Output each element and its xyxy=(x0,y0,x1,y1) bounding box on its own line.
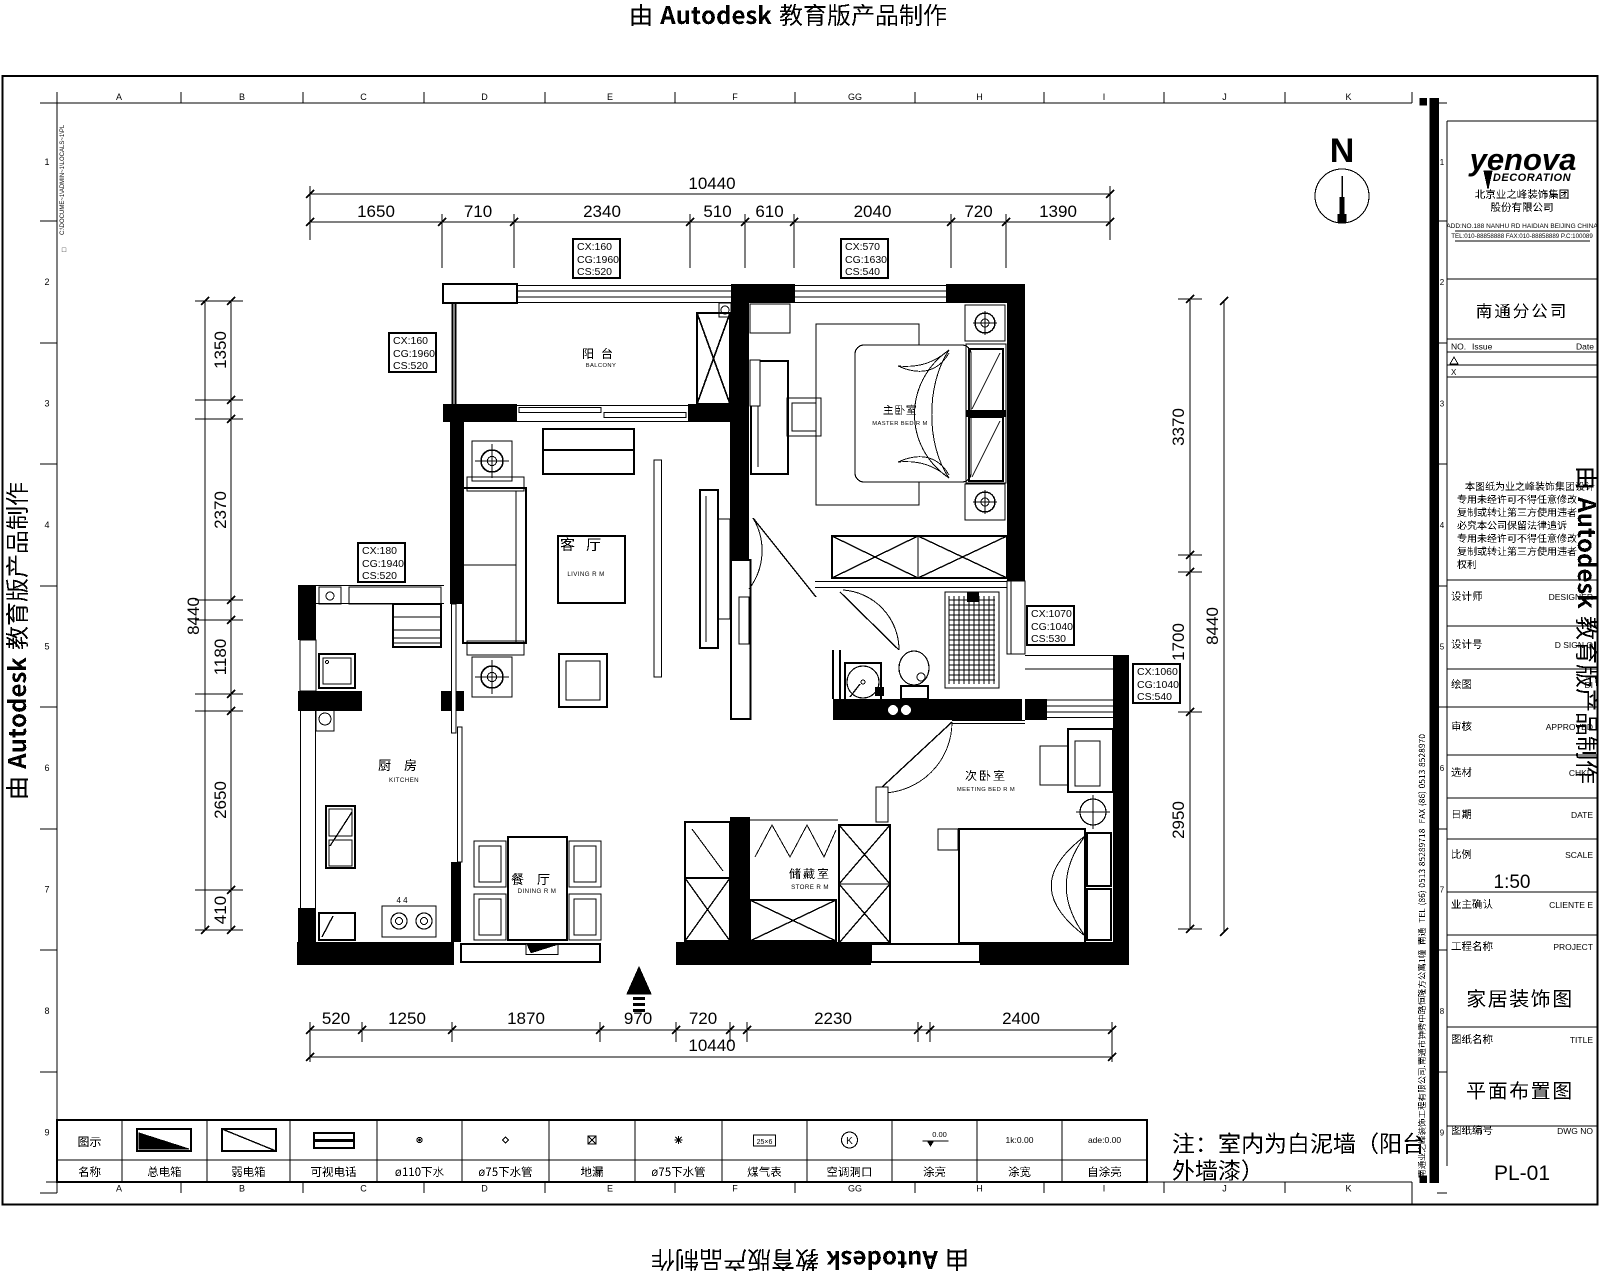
svg-text:2230: 2230 xyxy=(814,1009,852,1028)
svg-text:6: 6 xyxy=(44,763,49,773)
svg-text:H: H xyxy=(976,1184,983,1194)
svg-text:2400: 2400 xyxy=(1002,1009,1040,1028)
svg-text:25×6: 25×6 xyxy=(757,1139,773,1146)
svg-text:2040: 2040 xyxy=(854,202,892,221)
svg-text:E: E xyxy=(607,92,613,102)
svg-text:E: E xyxy=(607,1184,613,1194)
svg-text:8: 8 xyxy=(1440,1007,1445,1016)
svg-text:D: D xyxy=(481,92,488,102)
svg-text:DECORATION: DECORATION xyxy=(1493,172,1572,184)
svg-text:610: 610 xyxy=(755,202,783,221)
svg-text:A: A xyxy=(116,92,122,102)
svg-text:DWG NO: DWG NO xyxy=(1557,1126,1593,1136)
svg-text:710: 710 xyxy=(464,202,492,221)
svg-text:2950: 2950 xyxy=(1169,801,1188,839)
svg-text:2: 2 xyxy=(44,277,49,287)
svg-text:8440: 8440 xyxy=(184,597,203,635)
svg-text:MEETING BED R M: MEETING BED R M xyxy=(957,787,1015,793)
svg-text:CX:160: CX:160 xyxy=(393,335,428,347)
svg-text:1700: 1700 xyxy=(1169,623,1188,661)
svg-text:SCALE: SCALE xyxy=(1565,850,1593,860)
svg-text:8440: 8440 xyxy=(1203,607,1222,645)
svg-text:CX:1070: CX:1070 xyxy=(1031,608,1072,620)
svg-text:0.00: 0.00 xyxy=(932,1130,947,1139)
svg-text:I: I xyxy=(1103,1184,1106,1194)
svg-text:K: K xyxy=(1345,1184,1351,1194)
svg-text:6: 6 xyxy=(1440,764,1445,773)
svg-text:A: A xyxy=(116,1184,122,1194)
svg-text:CS:520: CS:520 xyxy=(362,570,397,582)
svg-text:3370: 3370 xyxy=(1169,408,1188,446)
svg-text:GG: GG xyxy=(848,1184,862,1194)
svg-text:CG:1040: CG:1040 xyxy=(1137,679,1179,691)
svg-text:TITLE: TITLE xyxy=(1570,1035,1593,1045)
svg-text:LIVING R M: LIVING R M xyxy=(567,571,604,578)
svg-text:970: 970 xyxy=(624,1009,652,1028)
svg-text:CX:570: CX:570 xyxy=(845,241,880,253)
svg-text:3: 3 xyxy=(44,399,49,409)
svg-text:K: K xyxy=(1345,92,1351,102)
svg-text:520: 520 xyxy=(322,1009,350,1028)
svg-text:CS:530: CS:530 xyxy=(1031,633,1066,645)
svg-text:CS:540: CS:540 xyxy=(1137,691,1172,703)
svg-text:B: B xyxy=(239,92,245,102)
svg-text:CG:1960: CG:1960 xyxy=(393,348,435,360)
svg-text:1: 1 xyxy=(44,157,49,167)
svg-text:1390: 1390 xyxy=(1039,202,1077,221)
svg-text:10440: 10440 xyxy=(688,174,735,193)
svg-text:CS:540: CS:540 xyxy=(845,266,880,278)
svg-text:NO.: NO. xyxy=(1451,342,1466,352)
svg-text:CX:160: CX:160 xyxy=(577,241,612,253)
svg-text:PL-01: PL-01 xyxy=(1494,1162,1550,1185)
svg-text:4 4: 4 4 xyxy=(396,896,408,905)
svg-text:1650: 1650 xyxy=(357,202,395,221)
svg-text:CHKD: CHKD xyxy=(1569,768,1593,778)
svg-text:F: F xyxy=(732,1184,738,1194)
svg-text:GG: GG xyxy=(848,92,862,102)
svg-text:1k:0.00: 1k:0.00 xyxy=(1006,1135,1034,1145)
svg-text:J: J xyxy=(1222,1184,1227,1194)
svg-text:2650: 2650 xyxy=(211,781,230,819)
svg-text:C: C xyxy=(360,92,367,102)
svg-text:N: N xyxy=(1330,132,1355,170)
svg-text:1: 1 xyxy=(1440,158,1445,167)
svg-text:KITCHEN: KITCHEN xyxy=(389,777,419,784)
svg-text:2340: 2340 xyxy=(583,202,621,221)
svg-text:D SIGN O: D SIGN O xyxy=(1555,640,1594,650)
svg-text:ADD:NO.188 NANHU RD HAIDIAN BE: ADD:NO.188 NANHU RD HAIDIAN BEIJING CHIN… xyxy=(1446,223,1598,230)
svg-text:Date: Date xyxy=(1576,342,1594,352)
svg-text:DATE: DATE xyxy=(1571,810,1593,820)
svg-text:B: B xyxy=(239,1184,245,1194)
svg-text:CLIENTE E: CLIENTE E xyxy=(1549,900,1593,910)
svg-text:F: F xyxy=(732,92,738,102)
svg-text:CX:1060: CX:1060 xyxy=(1137,666,1178,678)
svg-text:4: 4 xyxy=(1440,521,1445,530)
svg-text:D: D xyxy=(481,1184,488,1194)
svg-text:C:\DOCUME~1\ADMIN~1\LOCALS~1\P: C:\DOCUME~1\ADMIN~1\LOCALS~1\PL xyxy=(60,124,66,235)
svg-text:720: 720 xyxy=(689,1009,717,1028)
svg-text:5: 5 xyxy=(1440,643,1445,652)
svg-text:K: K xyxy=(846,1136,853,1147)
svg-text:CG:1960: CG:1960 xyxy=(577,254,619,266)
svg-text:PROJECT: PROJECT xyxy=(1553,942,1593,952)
svg-text:MASTER BED R M: MASTER BED R M xyxy=(872,421,928,427)
svg-text:2370: 2370 xyxy=(211,491,230,529)
svg-text:5: 5 xyxy=(44,642,49,652)
svg-text:CS:520: CS:520 xyxy=(393,360,428,372)
svg-text:1180: 1180 xyxy=(211,639,230,676)
svg-text:410: 410 xyxy=(211,896,230,924)
svg-text:DESIGNER: DESIGNER xyxy=(1549,592,1593,602)
svg-text:STORE R M: STORE R M xyxy=(791,884,829,891)
svg-text:ade:0.00: ade:0.00 xyxy=(1088,1135,1121,1145)
svg-text:9: 9 xyxy=(1440,1129,1445,1138)
svg-text:Issue: Issue xyxy=(1472,342,1493,352)
svg-text:720: 720 xyxy=(964,202,992,221)
svg-text:9: 9 xyxy=(44,1128,49,1138)
svg-text:2: 2 xyxy=(1440,278,1445,287)
svg-text:8: 8 xyxy=(44,1006,49,1016)
svg-text:1350: 1350 xyxy=(211,331,230,369)
svg-text:I: I xyxy=(1103,92,1106,102)
svg-text:TEL:010-88858888 FAX:010-8885: TEL:010-88858888 FAX:010-88858889 P.C:10… xyxy=(1451,233,1593,240)
svg-text:1250: 1250 xyxy=(388,1009,426,1028)
svg-text:1:50: 1:50 xyxy=(1494,872,1531,893)
svg-text:CG:1040: CG:1040 xyxy=(1031,621,1073,633)
svg-text:C: C xyxy=(360,1184,367,1194)
svg-text:CG:1940: CG:1940 xyxy=(362,558,404,570)
svg-text:10440: 10440 xyxy=(688,1036,735,1055)
svg-text:DI: DI xyxy=(1585,680,1594,690)
svg-text:H: H xyxy=(976,92,983,102)
svg-text:1870: 1870 xyxy=(507,1009,545,1028)
svg-text:DINING R M: DINING R M xyxy=(518,888,557,895)
svg-text:APPROVED: APPROVED xyxy=(1546,722,1593,732)
svg-text:CS:520: CS:520 xyxy=(577,266,612,278)
svg-text:7: 7 xyxy=(1440,886,1445,895)
svg-text:7: 7 xyxy=(44,885,49,895)
svg-text:BALCONY: BALCONY xyxy=(586,363,617,369)
svg-text:X: X xyxy=(1451,368,1457,377)
svg-text:CX:180: CX:180 xyxy=(362,545,397,557)
svg-text:3: 3 xyxy=(1440,400,1445,409)
svg-text:J: J xyxy=(1222,92,1227,102)
svg-text:510: 510 xyxy=(703,202,731,221)
svg-text:4: 4 xyxy=(44,520,49,530)
svg-text:CG:1630: CG:1630 xyxy=(845,254,887,266)
